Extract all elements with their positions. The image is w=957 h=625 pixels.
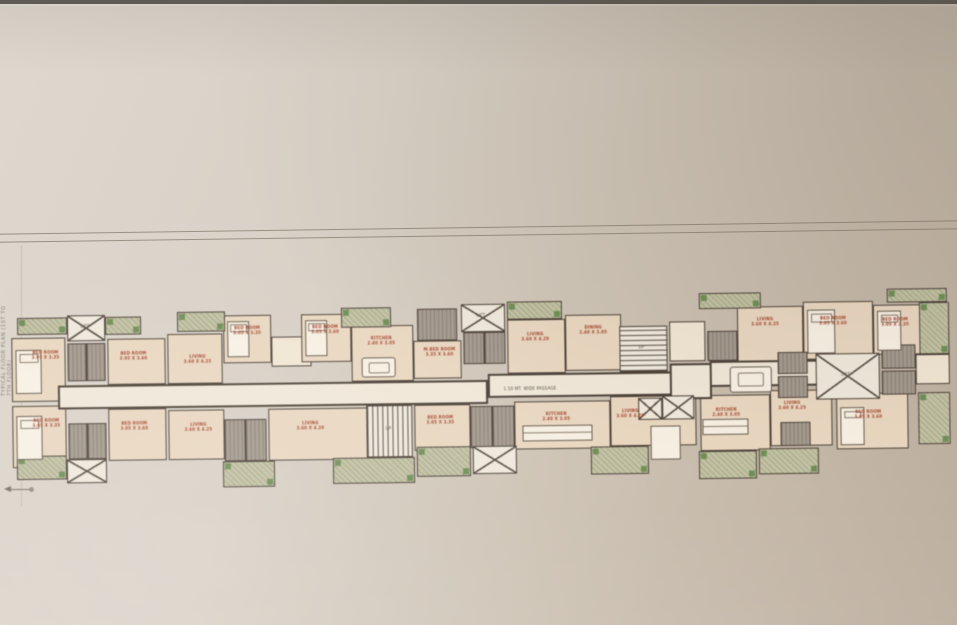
photo-background: TYPICAL FLOOR PLAN (1ST TO 7TH FLOOR) BE… (0, 0, 957, 625)
toilet-block (245, 419, 267, 461)
room-label: LIVING 3.60 X 4.25 (778, 401, 806, 411)
room (507, 319, 566, 374)
room-label: KITCHEN 2.40 X 3.05 (542, 412, 570, 422)
room-label: LIVING 3.60 X 4.25 (184, 423, 212, 433)
balcony (333, 457, 415, 484)
room-label: BED ROOM 3.05 X 3.60 (120, 422, 148, 432)
balcony (507, 301, 562, 320)
room (414, 404, 471, 451)
plan-annotation: UP (386, 427, 392, 432)
toilet-block (484, 332, 505, 364)
room-light (916, 354, 950, 384)
balcony (223, 461, 275, 488)
room-label: LIVING 3.60 X 4.20 (296, 421, 324, 431)
lift-shaft (473, 446, 517, 475)
balcony (105, 316, 141, 334)
balcony (591, 446, 649, 475)
plan-annotation: LIFT (81, 325, 90, 330)
room-label: LIVING 3.60 X 4.20 (521, 332, 549, 342)
sheet-border-line-bottom (0, 228, 957, 243)
room-label: BED ROOM 3.05 X 3.60 (311, 325, 339, 335)
toilet-block (87, 423, 106, 459)
room (107, 338, 166, 385)
room (168, 409, 225, 460)
room-label: LIVING 3.60 X 4.20 (616, 409, 644, 419)
north-arrow-tail (29, 487, 34, 492)
corridor (488, 372, 672, 398)
utility-box (650, 425, 680, 459)
photo-top-edge-highlight (0, 4, 957, 6)
room-label: BED ROOM 3.05 X 3.35 (32, 351, 60, 361)
dining-table-icon (362, 357, 396, 377)
room-label: LIVING 3.60 X 4.25 (751, 317, 779, 327)
kitchen-counter (522, 425, 592, 442)
plan-annotation: 1.50 MT. WIDE PASSAGE (504, 387, 557, 392)
room-label: LIVING 3.60 X 4.25 (184, 355, 212, 365)
room (268, 407, 369, 460)
room-label: DINING 2.40 X 3.05 (579, 326, 607, 336)
toilet-block (470, 406, 493, 448)
plan-annotation: UP (639, 345, 645, 350)
room-label: BED ROOM 3.05 X 3.60 (854, 410, 882, 420)
north-arrow-head (4, 486, 11, 492)
balcony (417, 446, 471, 477)
balcony (699, 450, 757, 479)
toilet-block (224, 419, 246, 461)
toilet-block (417, 308, 457, 341)
balcony (918, 392, 951, 444)
balcony (341, 307, 391, 328)
toilet-block (67, 343, 86, 381)
kitchen-counter (702, 419, 748, 436)
balcony (699, 292, 761, 309)
toilet-block (777, 352, 807, 374)
room-label: BED ROOM 3.05 X 3.35 (233, 326, 261, 336)
room-label: BED ROOM 3.05 X 3.60 (819, 316, 847, 326)
lift-shaft (662, 395, 694, 419)
balcony (759, 448, 819, 475)
lift-shaft (67, 459, 107, 484)
room (108, 408, 167, 461)
corridor (670, 363, 712, 400)
room (565, 314, 622, 371)
room-label: KITCHEN 2.40 X 3.05 (367, 336, 395, 346)
toilet-block (86, 343, 105, 381)
room-light (669, 321, 706, 361)
toilet-block (492, 406, 515, 448)
toilet-block (778, 376, 808, 398)
toilet-block (882, 370, 916, 394)
plan-annotation: LIFT (841, 373, 850, 378)
balcony (919, 302, 950, 354)
dining-table-icon (730, 366, 772, 393)
floor-plan: BED ROOM 3.05 X 3.35BED ROOM 3.05 X 3.60… (9, 288, 957, 498)
room-label: M.BED ROOM 3.35 X 3.60 (423, 348, 455, 358)
balcony (17, 317, 67, 335)
room-label: BED ROOM 3.05 X 3.35 (881, 318, 909, 328)
toilet-block (707, 331, 737, 361)
balcony (887, 288, 947, 303)
room-label: BED ROOM 3.05 X 3.35 (426, 416, 454, 426)
toilet-block (68, 423, 87, 459)
room-label: KITCHEN 2.40 X 3.05 (712, 408, 740, 418)
room-label: BED ROOM 3.05 X 3.35 (32, 419, 60, 429)
toilet-block (463, 332, 484, 364)
plan-annotation: LIFT (477, 314, 486, 319)
north-arrow-icon (4, 484, 34, 496)
balcony (177, 311, 225, 332)
sheet-border-line-top (0, 220, 957, 235)
room-label: BED ROOM 3.05 X 3.60 (120, 352, 148, 362)
toilet-block (780, 422, 810, 446)
